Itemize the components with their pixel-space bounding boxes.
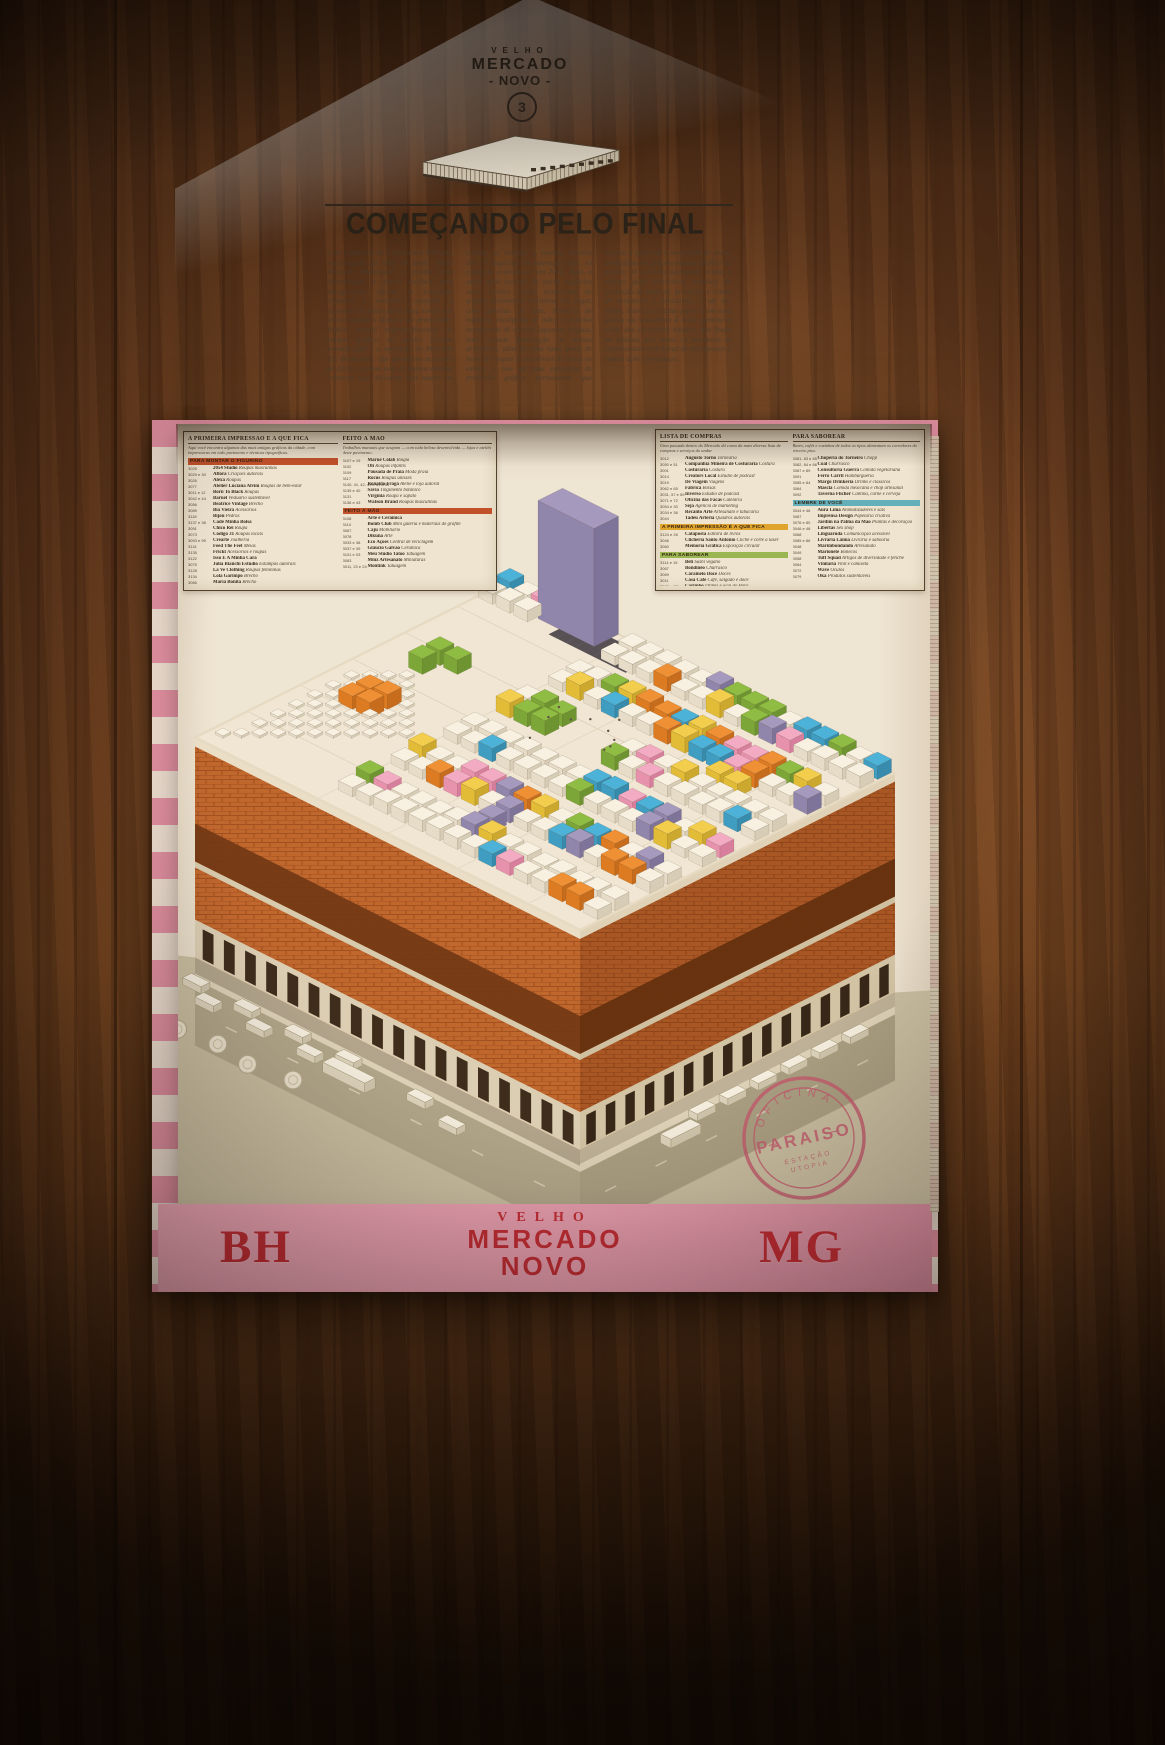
flipped-page-wrap: VELHO MERCADO - NOVO - 3 COMEÇANDO PELO … (175, 0, 933, 406)
directory-item: 3136 e 43Watson Brand Roupas masculinas (343, 500, 493, 506)
flipped-page: VELHO MERCADO - NOVO - 3 COMEÇANDO PELO … (175, 0, 933, 406)
brand-mercado: MERCADO (175, 56, 865, 74)
headline: COMEÇANDO PELO FINAL (175, 208, 875, 241)
directory-item: 3005 e 07Carimbó Drinks e açaí do Pará (660, 584, 788, 586)
issue-number-badge: 3 (507, 92, 537, 122)
page-stack-edge (930, 436, 939, 1212)
directory-item: 3060Memória Gráfica Exposição circular (660, 544, 788, 550)
bottom-pink-band: BH VELHO MERCADO NOVO MG (158, 1204, 932, 1292)
directory-item: 3092Taverna Flicher Cantina, carne e cer… (793, 492, 921, 498)
directory-item: 3079Oka Produtos sustentáveis (793, 574, 921, 580)
brand-velho: VELHO (175, 46, 865, 55)
band-state-label: MG (759, 1220, 844, 1274)
headline-rule (325, 204, 733, 206)
article-col-text: Com a falência da Construtora Sobrado, e… (327, 248, 453, 373)
photo-of-printed-publication: A PRIMEIRA IMPRESSÃO É A QUE FICAAqui vo… (0, 0, 1165, 1745)
article-text: Com a falência da Construtora Sobrado, e… (327, 248, 731, 394)
brand-novo: - NOVO - (175, 73, 865, 88)
stamp-center-text: PARAISO (755, 1119, 854, 1158)
section-banner: LEMBRE DE VOCÊ (793, 500, 921, 507)
directory-item: 3066Maria Bonita Brechó (188, 580, 338, 586)
directory-item: 3044Tadeu Arteria Quadros autorais (660, 516, 788, 522)
paraiso-rubber-stamp: OFICINAPARAISOESTAÇÃOUTOPIA (726, 1060, 883, 1217)
section-banner: A PRIMEIRA IMPRESSÃO É A QUE FICA (660, 524, 788, 531)
poster-page: A PRIMEIRA IMPRESSÃO É A QUE FICAAqui vo… (178, 424, 930, 1212)
directory-item: 3076 e 80Jardim na Palma da Mão Plantas … (793, 520, 921, 526)
directory-item: 3011, 23 e 24Montink Tatuagem (343, 564, 493, 570)
section-banner: PARA SABOREAR (660, 552, 788, 559)
fold-shadow (176, 424, 932, 466)
section-banner: FEITO À MÃO (343, 508, 493, 515)
building-line-illustration (415, 128, 627, 194)
